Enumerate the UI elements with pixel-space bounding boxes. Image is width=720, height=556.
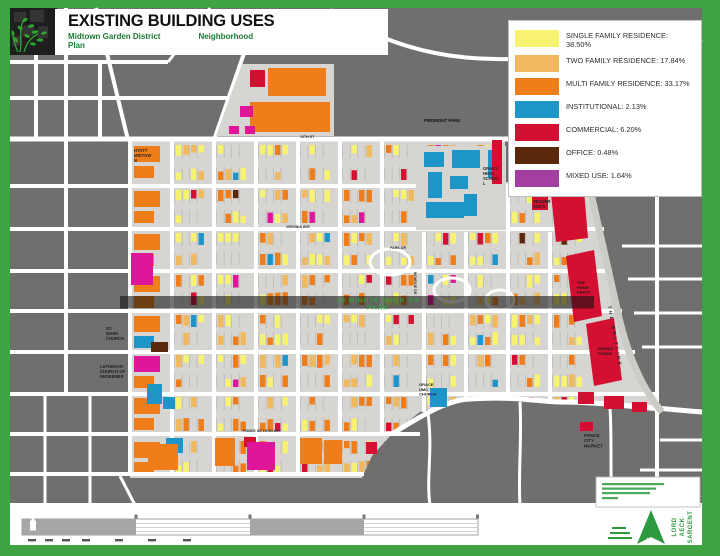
- legend-label: OFFICE: 0.48%: [566, 147, 618, 158]
- map-label-piedmont-park: PIEDMONT PARK: [424, 118, 461, 123]
- legend-item: OFFICE: 0.48%: [515, 147, 695, 164]
- map-label-street-virginia-ave: VIRGINIA AVE: [286, 225, 310, 229]
- legend-label: SINGLE FAMILY RESIDENCE: 38.50%: [566, 30, 695, 49]
- map-label-street-monroe-dr: MONROE DR: [413, 272, 417, 295]
- source-note-box: [596, 477, 700, 507]
- legend-item: TWO FAMILY RESIDENCE: 17.84%: [515, 55, 695, 72]
- legend-swatch: [515, 124, 559, 141]
- svg-text:PARK: PARK: [367, 305, 389, 312]
- subtitle: Midtown Garden District Neighborhood Pla…: [68, 32, 382, 50]
- subtitle-plan: Plan: [68, 41, 382, 50]
- title-card: EXISTING BUILDING USES Midtown Garden Di…: [55, 9, 388, 55]
- legend-swatch: [515, 101, 559, 118]
- legend-label: INSTITUTIONAL: 2.13%: [566, 101, 647, 112]
- legend-swatch: [515, 30, 559, 47]
- firm-word-3: SARGENT: [688, 511, 694, 544]
- legend-item: SINGLE FAMILY RESIDENCE: 38.50%: [515, 30, 695, 49]
- legend-label: TWO FAMILY RESIDENCE: 17.84%: [566, 55, 685, 66]
- legend: SINGLE FAMILY RESIDENCE: 38.50%TWO FAMIL…: [508, 20, 702, 197]
- legend-label: MIXED USE: 1.64%: [566, 170, 632, 181]
- map-label-lutheran-church: LUTHERANCHURCH OFREDEEMER: [100, 364, 126, 379]
- subtitle-neighborhood: Neighborhood: [198, 32, 253, 41]
- legend-item: INSTITUTIONAL: 2.13%: [515, 101, 695, 118]
- legend-item: MIXED USE: 1.64%: [515, 170, 695, 187]
- page-title: EXISTING BUILDING USES: [68, 12, 382, 31]
- map-poster: 10 MINUTE WALK TOPARK HYATTMIDTOWNPIEDMO…: [0, 0, 720, 556]
- map-label-street-park-dr: PARK DR: [390, 246, 407, 250]
- legend-swatch: [515, 78, 559, 95]
- map-label-street-10th-st: 10TH ST: [300, 135, 315, 139]
- svg-text:10 MINUTE WALK TO: 10 MINUTE WALK TO: [337, 298, 420, 305]
- legend-label: COMMERCIAL: 6.20%: [566, 124, 641, 135]
- legend-swatch: [515, 170, 559, 187]
- legend-item: MULTI FAMILY RESIDENCE: 33.17%: [515, 78, 695, 95]
- legend-swatch: [515, 147, 559, 164]
- firm-word-1: LORD: [672, 517, 678, 536]
- map-label-street-ponce-de-leon: PONCE DE LEON AVE: [243, 429, 281, 433]
- legend-swatch: [515, 55, 559, 72]
- subtitle-district: Midtown Garden District: [68, 32, 160, 41]
- north-label: N: [647, 538, 652, 545]
- legend-label: MULTI FAMILY RESIDENCE: 33.17%: [566, 78, 690, 89]
- firm-word-2: AECK: [680, 517, 686, 536]
- legend-item: COMMERCIAL: 6.20%: [515, 124, 695, 141]
- plan-logo: [10, 8, 57, 55]
- map-label-whole-foods: WHOLEFOODS: [598, 346, 613, 356]
